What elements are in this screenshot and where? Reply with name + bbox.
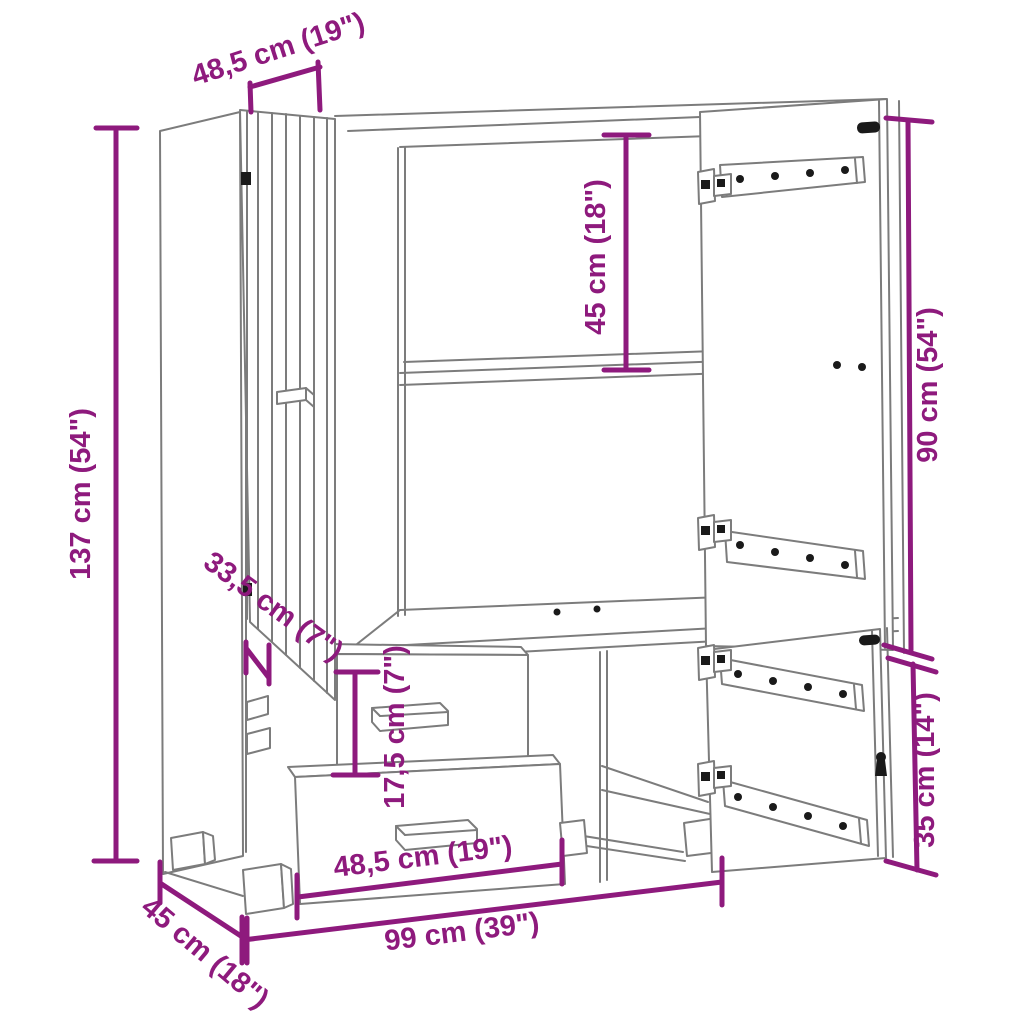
dimension-right-door-height-label: 90 cm (54") <box>912 307 944 463</box>
dimension-upper-compartment-height-label: 45 cm (18") <box>580 179 612 335</box>
upper-door-knob <box>857 121 881 134</box>
middle-left-leg <box>243 864 293 914</box>
dimension-top-width: 48,5 cm (19") <box>188 6 369 112</box>
dimension-overall-height-label: 137 cm (54") <box>65 408 97 580</box>
left-door-hinge-mark <box>241 172 251 185</box>
lower-door-knob <box>859 634 881 645</box>
upper-drawer <box>330 644 528 776</box>
right-lower-door <box>698 628 893 872</box>
dimension-overall-height: 137 cm (54") <box>65 128 137 861</box>
wardrobe-diagram: 48,5 cm (19") 137 cm (54") 45 cm (18") 9… <box>0 0 1024 1024</box>
dimension-lower-door-height: 35 cm (14") <box>886 658 941 875</box>
diagram-canvas: 48,5 cm (19") 137 cm (54") 45 cm (18") 9… <box>0 0 1024 1024</box>
right-upper-door <box>698 99 904 653</box>
keyhole-icon <box>875 752 887 776</box>
dimension-upper-compartment-height: 45 cm (18") <box>580 135 649 370</box>
dimension-drawer-height-label: 17,5 cm (7") <box>379 645 411 809</box>
dimension-lower-door-height-label: 35 cm (14") <box>909 692 941 848</box>
